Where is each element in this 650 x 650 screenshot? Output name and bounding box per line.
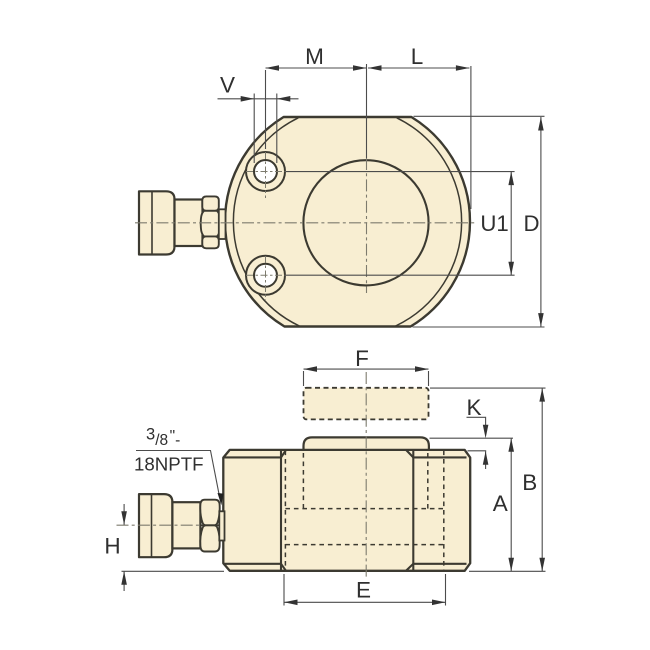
svg-text:V: V xyxy=(220,73,235,98)
svg-text:L: L xyxy=(411,44,424,69)
svg-text:K: K xyxy=(466,395,481,420)
svg-text:F: F xyxy=(355,346,369,371)
svg-text:3/8"-: 3/8"- xyxy=(146,426,180,449)
svg-text:B: B xyxy=(522,470,537,495)
svg-text:H: H xyxy=(104,534,120,559)
svg-text:18NPTF: 18NPTF xyxy=(134,454,204,475)
svg-text:M: M xyxy=(305,44,324,69)
svg-text:E: E xyxy=(356,578,371,603)
svg-text:D: D xyxy=(523,211,539,236)
svg-text:A: A xyxy=(493,491,508,516)
svg-text:U1: U1 xyxy=(480,211,508,236)
